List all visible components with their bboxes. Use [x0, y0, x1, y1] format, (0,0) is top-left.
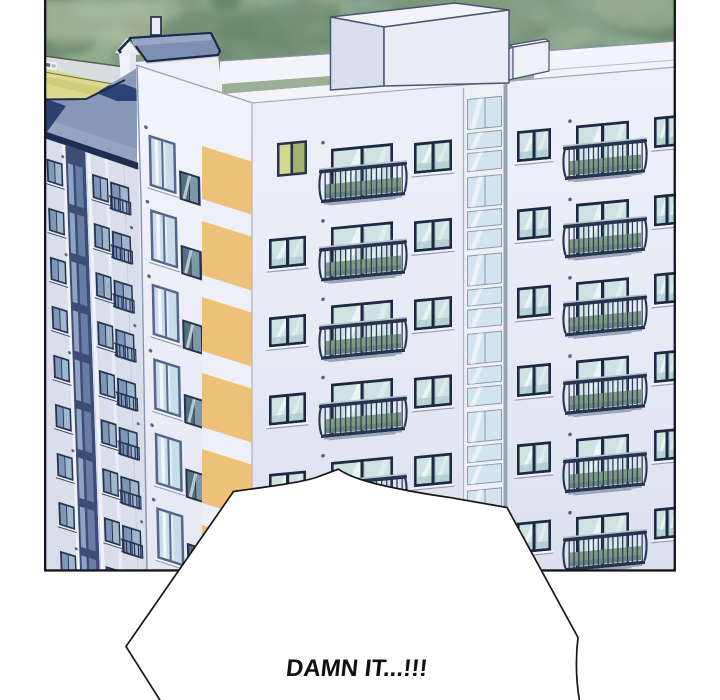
svg-text:DAMN IT...!!!: DAMN IT...!!! — [285, 655, 429, 682]
